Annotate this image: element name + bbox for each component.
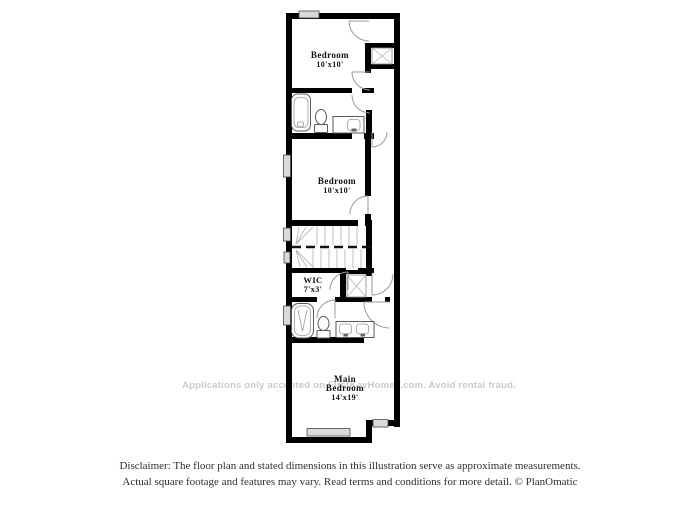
window bbox=[284, 155, 291, 177]
window bbox=[373, 420, 388, 428]
toilet-icon bbox=[315, 110, 328, 133]
disclaimer-line-1: Disclaimer: The floor plan and stated di… bbox=[119, 460, 580, 472]
door-hall bbox=[372, 132, 387, 147]
floor-plan: Bedroom 10'x10' Bedroom 10'x10' WIC 7'x3… bbox=[284, 11, 401, 443]
room-dims-main: 14'x19' bbox=[331, 393, 358, 402]
closet-wic bbox=[347, 275, 366, 297]
double-sink-vanity-icon bbox=[336, 322, 374, 338]
staircase bbox=[292, 226, 372, 268]
room-dims-bedroom-middle: 10'x10' bbox=[323, 186, 350, 195]
room-dims-bedroom-upper: 10'x10' bbox=[316, 60, 343, 69]
door-wic-to-bath bbox=[317, 300, 335, 318]
toilet-icon bbox=[317, 317, 330, 339]
door-bedroom-upper bbox=[349, 21, 369, 41]
room-label-wic: WIC bbox=[303, 275, 322, 285]
disclaimer-line-2: Actual square footage and features may v… bbox=[122, 476, 577, 488]
door-landing-upper bbox=[352, 72, 370, 90]
closet-upper bbox=[372, 48, 392, 64]
disclaimer: Disclaimer: The floor plan and stated di… bbox=[119, 460, 580, 488]
window bbox=[307, 429, 350, 437]
door-closet-wic bbox=[372, 274, 393, 295]
room-label-main-2: Bedroom bbox=[326, 383, 364, 393]
room-label-bedroom-middle: Bedroom bbox=[318, 176, 356, 186]
floor-plan-canvas: Applications only accepted on FirstKeyHo… bbox=[0, 0, 700, 509]
wall-right bbox=[394, 13, 400, 427]
floor-plan-page: Applications only accepted on FirstKeyHo… bbox=[0, 0, 700, 509]
door-bedroom-middle bbox=[350, 196, 368, 214]
window bbox=[284, 228, 291, 241]
window bbox=[284, 306, 291, 325]
sink-vanity-icon bbox=[333, 117, 364, 134]
shower-tub-icon bbox=[292, 304, 314, 339]
window bbox=[299, 11, 319, 18]
bathtub-icon bbox=[292, 94, 311, 131]
room-label-bedroom-upper: Bedroom bbox=[311, 50, 349, 60]
window bbox=[284, 252, 290, 263]
wall-bottom-left bbox=[286, 437, 372, 443]
bath-main-fixtures bbox=[292, 304, 375, 339]
room-dims-wic: 7'x3' bbox=[304, 285, 322, 294]
